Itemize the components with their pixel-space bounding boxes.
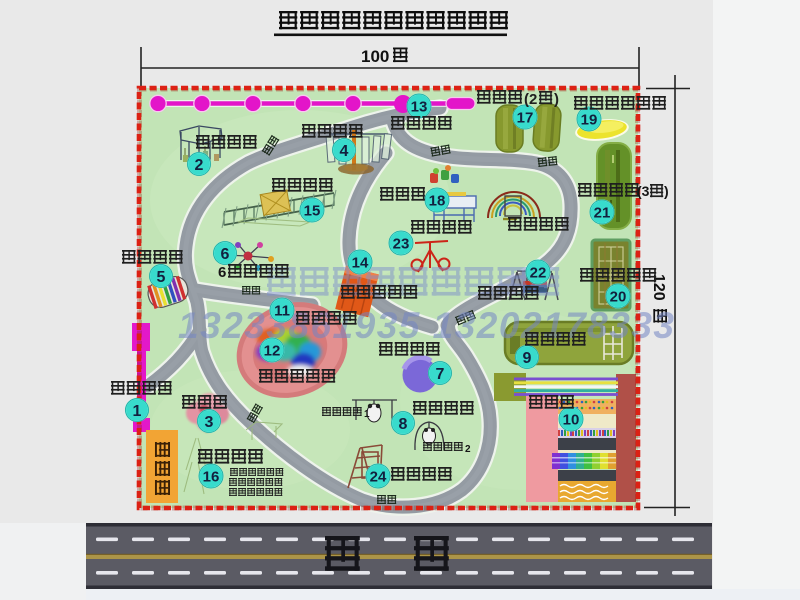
svg-text:4: 4 — [340, 143, 349, 160]
svg-text:2: 2 — [195, 157, 204, 174]
svg-text:2: 2 — [465, 444, 471, 455]
svg-text:8: 8 — [399, 416, 408, 433]
svg-text:7: 7 — [436, 366, 445, 383]
svg-text:14: 14 — [352, 254, 369, 271]
svg-text:120: 120 — [650, 274, 667, 301]
svg-text:11: 11 — [274, 302, 290, 319]
svg-text:13: 13 — [411, 98, 428, 115]
svg-text:10: 10 — [563, 411, 580, 428]
svg-text:1: 1 — [364, 409, 370, 420]
svg-text:16: 16 — [203, 468, 220, 485]
svg-text:9: 9 — [523, 350, 532, 367]
svg-text:15: 15 — [304, 202, 321, 219]
svg-text:24: 24 — [370, 468, 387, 485]
svg-text:(3: (3 — [637, 183, 650, 199]
svg-text:13233861935 13202178333: 13233861935 13202178333 — [178, 305, 676, 346]
svg-text:3: 3 — [205, 414, 214, 431]
svg-text:20: 20 — [610, 288, 627, 305]
svg-text:17: 17 — [517, 109, 534, 126]
svg-text:100: 100 — [361, 47, 389, 66]
svg-text:6: 6 — [218, 264, 226, 281]
svg-text:(2: (2 — [524, 91, 537, 108]
svg-text:23: 23 — [393, 235, 410, 252]
svg-text:22: 22 — [530, 264, 547, 281]
svg-text:6: 6 — [221, 246, 230, 263]
svg-text:18: 18 — [429, 192, 446, 209]
svg-text:5: 5 — [157, 269, 166, 286]
svg-text:21: 21 — [594, 204, 611, 221]
svg-text:): ) — [554, 91, 559, 108]
svg-text:12: 12 — [264, 342, 281, 359]
svg-text:19: 19 — [581, 111, 598, 128]
svg-text:): ) — [664, 183, 669, 199]
svg-text:1: 1 — [133, 403, 142, 420]
